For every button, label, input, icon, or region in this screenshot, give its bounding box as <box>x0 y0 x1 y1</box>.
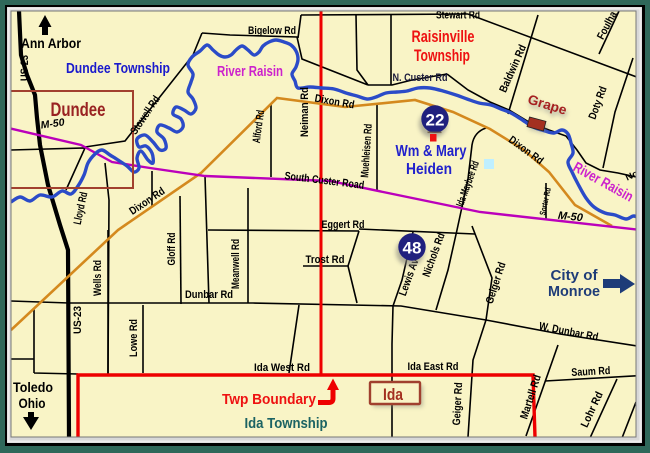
svg-text:Ida West Rd: Ida West Rd <box>254 362 310 374</box>
svg-text:Ohio: Ohio <box>19 396 46 411</box>
svg-text:Heiden: Heiden <box>406 161 452 178</box>
svg-text:City of: City of <box>551 268 598 284</box>
svg-text:Saum Rd: Saum Rd <box>571 365 611 379</box>
svg-text:Bigelow Rd: Bigelow Rd <box>248 25 296 37</box>
svg-text:Neiman Rd: Neiman Rd <box>299 87 311 137</box>
svg-text:Trost Rd: Trost Rd <box>306 254 345 266</box>
svg-text:Dundee: Dundee <box>51 100 106 121</box>
svg-text:US-23: US-23 <box>72 306 84 334</box>
svg-text:48: 48 <box>403 239 422 258</box>
svg-text:N. Custer Rd: N. Custer Rd <box>393 72 448 84</box>
svg-text:Toledo: Toledo <box>13 380 53 395</box>
svg-text:Gloff Rd: Gloff Rd <box>166 233 178 266</box>
svg-text:Dundee Township: Dundee Township <box>66 60 170 77</box>
svg-text:Eggert Rd: Eggert Rd <box>322 219 365 231</box>
svg-text:Ida: Ida <box>383 385 403 404</box>
svg-text:Twp Boundary: Twp Boundary <box>222 391 317 408</box>
svg-text:Ann Arbor: Ann Arbor <box>21 35 81 51</box>
svg-text:Lowe Rd: Lowe Rd <box>128 319 140 357</box>
svg-text:Monroe: Monroe <box>548 284 600 300</box>
svg-text:US-23: US-23 <box>19 55 31 81</box>
svg-text:Wells Rd: Wells Rd <box>92 260 104 296</box>
svg-text:22: 22 <box>426 111 445 130</box>
svg-text:Geiger Rd: Geiger Rd <box>451 382 465 426</box>
svg-text:Ida Township: Ida Township <box>245 415 328 432</box>
svg-text:Meanwell Rd: Meanwell Rd <box>230 239 242 289</box>
svg-text:Dunbar Rd: Dunbar Rd <box>185 289 233 301</box>
svg-text:Raisinville: Raisinville <box>412 27 475 46</box>
svg-text:River Raisin: River Raisin <box>217 64 283 80</box>
svg-text:Ida East Rd: Ida East Rd <box>408 361 459 373</box>
svg-text:Township: Township <box>414 46 470 65</box>
svg-text:Wm & Mary: Wm & Mary <box>396 143 467 160</box>
